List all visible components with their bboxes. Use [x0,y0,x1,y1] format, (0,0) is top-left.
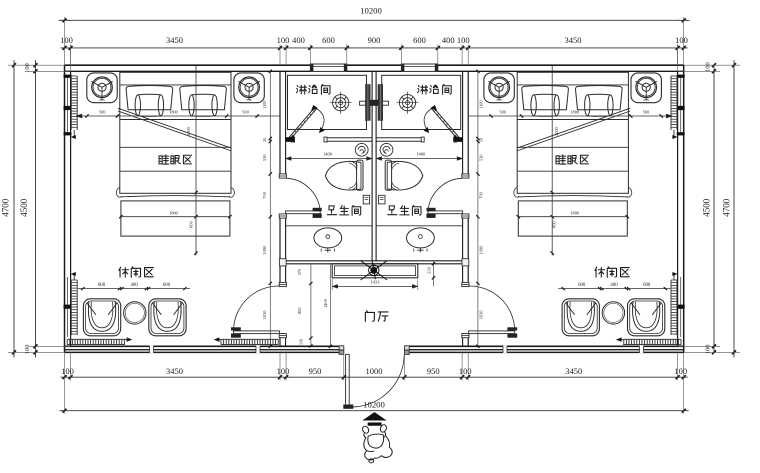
svg-text:100: 100 [705,345,712,355]
svg-text:1400: 1400 [323,151,333,156]
svg-text:600: 600 [98,283,106,288]
svg-text:100: 100 [60,35,73,45]
svg-text:1400: 1400 [416,151,426,156]
svg-text:100: 100 [705,62,712,72]
svg-text:130: 130 [299,339,304,345]
svg-text:100: 100 [61,366,74,376]
svg-text:1800: 1800 [169,210,178,215]
svg-text:900: 900 [368,35,381,45]
svg-text:1030: 1030 [262,310,267,320]
svg-text:10200: 10200 [360,6,382,16]
svg-text:2000: 2000 [186,127,191,136]
svg-text:100: 100 [24,63,31,73]
svg-text:700: 700 [262,191,267,198]
svg-text:100: 100 [24,345,31,355]
svg-text:1400: 1400 [323,298,328,308]
svg-text:100: 100 [674,366,687,376]
svg-text:370: 370 [297,268,302,275]
svg-text:2000: 2000 [554,127,559,136]
svg-text:500: 500 [242,110,248,115]
svg-text:950: 950 [427,366,440,376]
svg-text:1433: 1433 [371,280,381,285]
svg-text:530: 530 [478,154,483,161]
svg-text:500: 500 [499,110,505,115]
svg-text:400: 400 [131,283,139,288]
svg-text:4500: 4500 [702,198,712,217]
svg-text:100: 100 [457,35,470,45]
svg-text:1000: 1000 [366,366,383,376]
svg-text:1800: 1800 [570,110,579,115]
svg-text:600: 600 [413,35,426,45]
svg-text:100: 100 [277,35,290,45]
svg-text:1030: 1030 [478,310,483,320]
svg-text:600: 600 [322,35,335,45]
svg-text:600: 600 [578,283,586,288]
svg-text:4500: 4500 [19,198,29,217]
svg-text:4700: 4700 [1,198,11,217]
svg-text:1800: 1800 [169,110,178,115]
svg-text:1090: 1090 [262,245,267,255]
svg-text:600: 600 [552,221,557,227]
svg-text:600: 600 [163,283,171,288]
svg-text:500: 500 [99,110,105,115]
svg-text:100: 100 [459,366,472,376]
svg-text:700: 700 [478,191,483,198]
svg-text:3450: 3450 [166,366,183,376]
svg-text:10200: 10200 [363,400,385,410]
svg-text:100: 100 [675,35,688,45]
svg-text:1090: 1090 [478,245,483,255]
svg-text:3450: 3450 [565,366,582,376]
svg-text:250: 250 [426,266,431,273]
svg-text:600: 600 [643,283,651,288]
svg-text:1100: 1100 [478,100,483,109]
svg-text:600: 600 [189,221,194,227]
svg-text:3450: 3450 [166,35,183,45]
svg-text:400: 400 [442,35,455,45]
svg-text:100: 100 [277,366,290,376]
svg-text:400: 400 [292,35,305,45]
svg-text:3450: 3450 [565,35,582,45]
svg-text:400: 400 [610,283,618,288]
svg-text:500: 500 [643,110,649,115]
svg-text:950: 950 [309,366,322,376]
svg-text:530: 530 [262,154,267,161]
svg-text:1100: 1100 [262,100,267,109]
svg-text:4700: 4700 [722,198,732,217]
svg-text:893: 893 [297,307,302,314]
svg-text:1800: 1800 [570,210,579,215]
